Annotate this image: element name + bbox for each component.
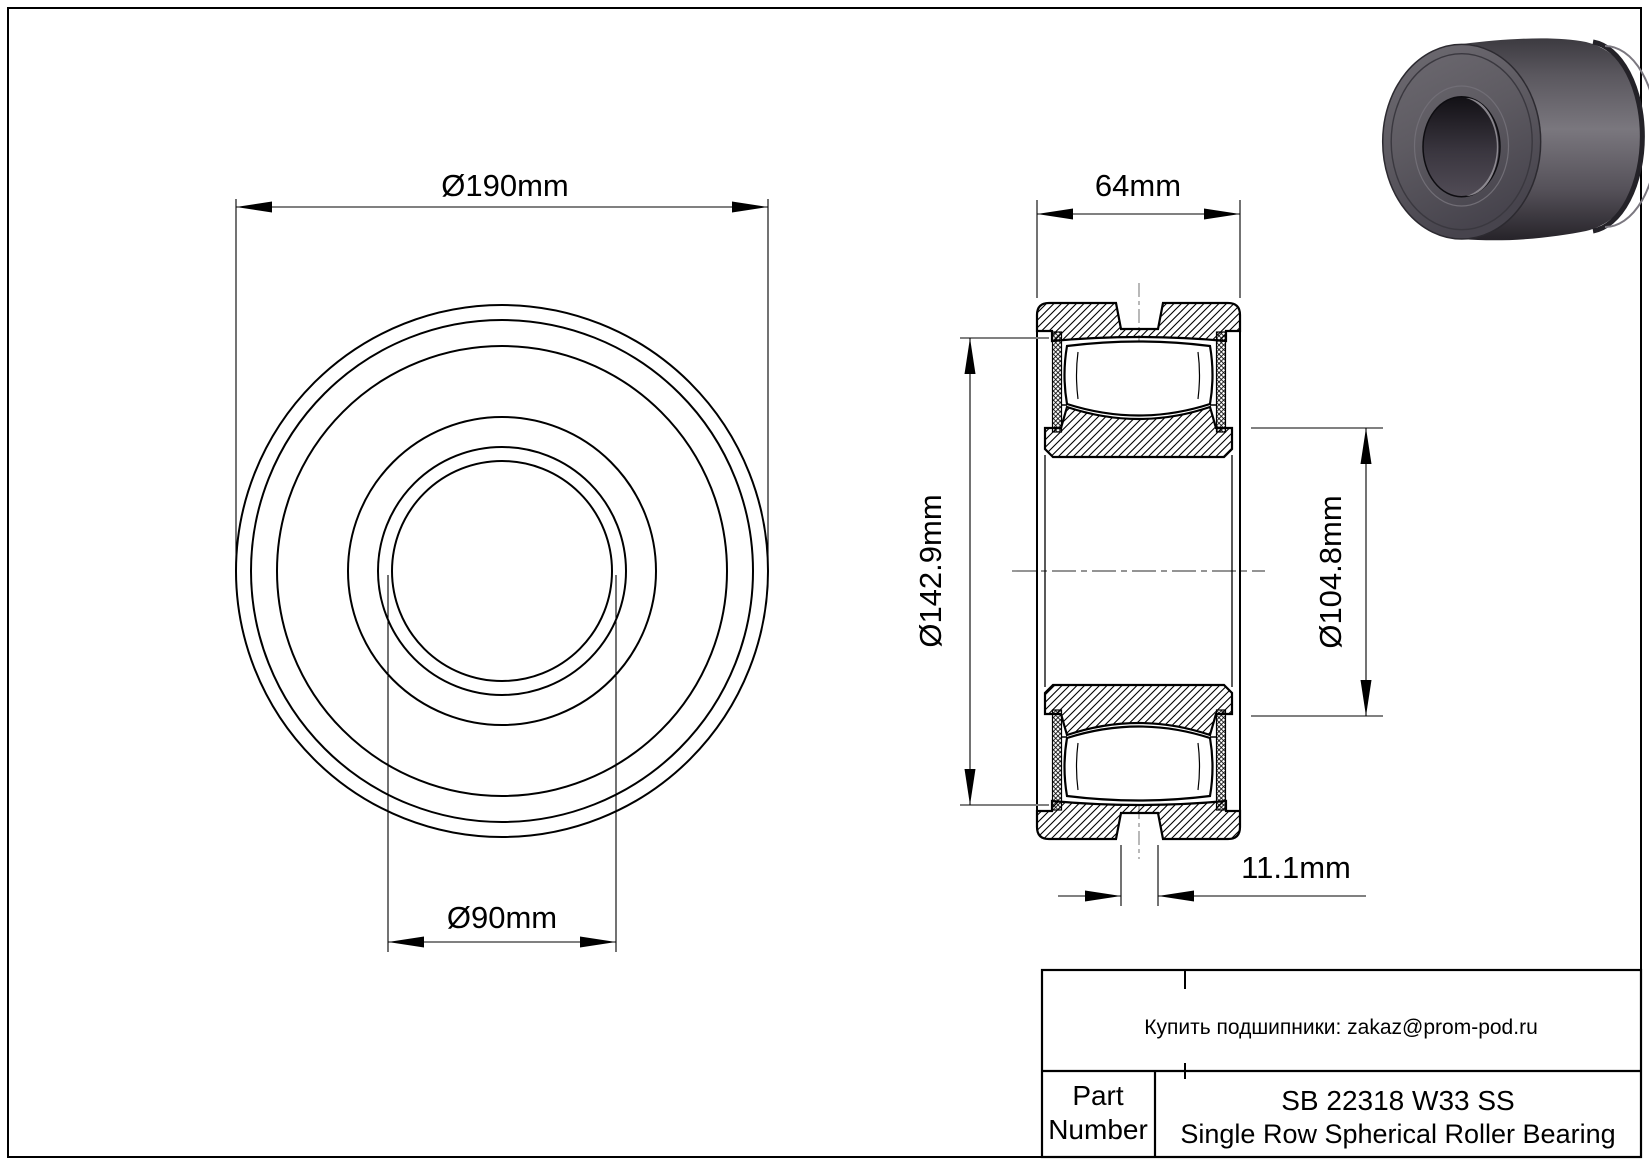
dimension-width: 64mm bbox=[1037, 168, 1240, 298]
front-view-bore-circle bbox=[392, 461, 612, 681]
contact-text: Купить подшипники: zakaz@prom-pod.ru bbox=[1144, 1016, 1538, 1039]
front-view-outer-raceway-circle bbox=[277, 346, 727, 796]
arrowhead-down bbox=[965, 769, 976, 805]
front-view-outer-diameter-circle bbox=[236, 305, 768, 837]
cage-strip-bottom-left bbox=[1053, 710, 1062, 810]
arrowhead-left bbox=[388, 937, 424, 948]
roller-bottom-section bbox=[1065, 727, 1213, 801]
part-number-text: SB 22318 W33 SS bbox=[1281, 1085, 1514, 1116]
dimension-outer-diameter: Ø190mm bbox=[236, 168, 768, 577]
arrowhead-left bbox=[236, 202, 272, 213]
front-view bbox=[236, 305, 768, 837]
dimension-label-od: Ø190mm bbox=[441, 168, 568, 203]
dimension-label-groove: 11.1mm bbox=[1241, 850, 1351, 885]
title-block: Купить подшипники: zakaz@prom-pod.ru Par… bbox=[1042, 970, 1641, 1157]
bearing-drawing-canvas: Ø190mm Ø90mm bbox=[0, 0, 1649, 1167]
arrowhead-inward-left bbox=[1085, 891, 1121, 902]
cage-strip-bottom-right bbox=[1217, 710, 1226, 810]
front-view-inner-shoulder-circle bbox=[348, 417, 656, 725]
dimension-bore-diameter: Ø90mm bbox=[388, 575, 616, 952]
arrowhead-right bbox=[580, 937, 616, 948]
front-view-outer-chamfer-circle bbox=[251, 320, 753, 822]
part-label-line1: Part bbox=[1072, 1080, 1124, 1111]
roller-top-section bbox=[1065, 342, 1213, 416]
dimension-label-width: 64mm bbox=[1095, 168, 1181, 203]
dimension-groove-width: 11.1mm bbox=[1058, 845, 1366, 906]
cage-strip-top-left bbox=[1053, 332, 1062, 432]
section-view bbox=[1012, 283, 1265, 859]
part-description-text: Single Row Spherical Roller Bearing bbox=[1180, 1119, 1615, 1149]
arrowhead-right bbox=[732, 202, 768, 213]
dimension-label-bore: Ø90mm bbox=[447, 900, 557, 935]
dimension-label-outer-raceway: Ø142.9mm bbox=[913, 494, 948, 647]
arrowhead-left bbox=[1037, 209, 1073, 220]
bearing-3d-render bbox=[1383, 38, 1649, 240]
arrowhead-up bbox=[1361, 428, 1372, 464]
dimension-label-inner-shoulder: Ø104.8mm bbox=[1313, 495, 1348, 648]
part-label-line2: Number bbox=[1048, 1114, 1148, 1145]
arrowhead-right bbox=[1204, 209, 1240, 220]
arrowhead-inward-right bbox=[1158, 891, 1194, 902]
arrowhead-down bbox=[1361, 680, 1372, 716]
drawing-page: Ø190mm Ø90mm bbox=[0, 0, 1649, 1167]
arrowhead-up bbox=[965, 338, 976, 374]
dimension-inner-shoulder: Ø104.8mm bbox=[1251, 428, 1383, 716]
cage-strip-top-right bbox=[1217, 332, 1226, 432]
front-view-bore-chamfer-circle bbox=[378, 447, 626, 695]
